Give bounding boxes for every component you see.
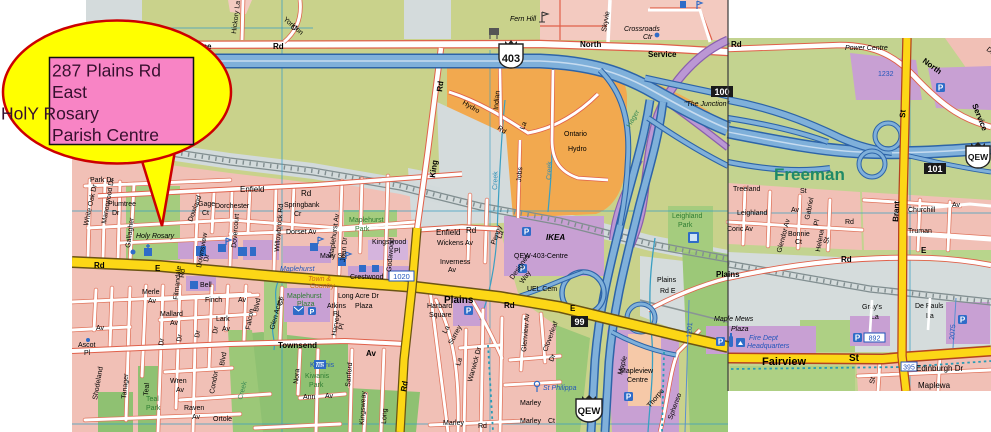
svg-text:Av: Av xyxy=(952,202,961,209)
svg-text:Fire Dept: Fire Dept xyxy=(749,335,779,342)
svg-text:Dr: Dr xyxy=(112,210,120,217)
svg-text:Ct: Ct xyxy=(202,210,209,217)
svg-text:Maplehurst: Maplehurst xyxy=(349,217,384,224)
svg-text:QEW: QEW xyxy=(578,406,601,417)
svg-text:East: East xyxy=(52,82,87,102)
svg-text:Service: Service xyxy=(648,50,677,59)
svg-text:Bonnie: Bonnie xyxy=(788,231,810,238)
svg-text:Park: Park xyxy=(355,226,370,233)
svg-text:Maplewa: Maplewa xyxy=(918,381,951,390)
svg-text:1201: 1201 xyxy=(686,322,694,338)
svg-text:"The Junction": "The Junction" xyxy=(684,101,730,108)
svg-text:Marley: Marley xyxy=(520,400,542,407)
svg-text:Square: Square xyxy=(429,312,452,319)
svg-text:Rd: Rd xyxy=(273,42,284,51)
svg-text:P: P xyxy=(938,84,944,93)
svg-text:St: St xyxy=(823,237,831,245)
svg-text:Kiwanis: Kiwanis xyxy=(305,373,330,380)
svg-text:Creek: Creek xyxy=(546,161,554,180)
svg-text:P: P xyxy=(466,307,472,316)
svg-text:1232: 1232 xyxy=(878,71,894,78)
svg-text:Parish Centre: Parish Centre xyxy=(52,125,159,145)
svg-text:Power Centre: Power Centre xyxy=(845,45,888,52)
svg-text:Atkins: Atkins xyxy=(327,303,347,310)
svg-text:Av: Av xyxy=(176,387,185,394)
svg-text:Gage: Gage xyxy=(198,201,215,208)
svg-text:Rd: Rd xyxy=(435,80,445,92)
svg-text:Ontario: Ontario xyxy=(564,131,587,138)
svg-text:Maplehurst: Maplehurst xyxy=(280,266,316,273)
svg-text:100: 100 xyxy=(714,87,729,97)
svg-text:Townsend: Townsend xyxy=(278,341,317,350)
svg-text:Bell: Bell xyxy=(200,282,212,289)
svg-text:2075: 2075 xyxy=(949,324,957,340)
svg-text:Springbank: Springbank xyxy=(284,202,320,209)
svg-text:Av: Av xyxy=(148,298,157,305)
svg-text:Av: Av xyxy=(222,326,231,333)
svg-text:North: North xyxy=(580,40,601,49)
svg-text:P: P xyxy=(310,309,315,316)
svg-text:Rd: Rd xyxy=(399,380,410,392)
svg-text:Cr: Cr xyxy=(294,211,302,218)
svg-text:Rd: Rd xyxy=(301,189,311,198)
svg-text:Mallard: Mallard xyxy=(160,311,183,318)
svg-text:Finch: Finch xyxy=(205,297,222,304)
svg-text:Ann: Ann xyxy=(303,394,316,401)
svg-text:Country: Country xyxy=(310,283,335,290)
svg-text:E: E xyxy=(570,304,576,313)
svg-text:Hydro: Hydro xyxy=(568,146,587,153)
svg-text:QEW: QEW xyxy=(968,152,989,162)
svg-text:Crossroads: Crossroads xyxy=(624,26,660,33)
svg-text:Wren: Wren xyxy=(170,378,187,385)
svg-text:Av: Av xyxy=(238,297,247,304)
svg-text:Long Acre Dr: Long Acre Dr xyxy=(338,293,380,300)
svg-text:Teal: Teal xyxy=(146,396,159,403)
svg-text:Plaza: Plaza xyxy=(731,326,749,333)
svg-text:Av: Av xyxy=(192,414,201,421)
svg-text:Rd E: Rd E xyxy=(660,288,676,295)
svg-text:Lark: Lark xyxy=(216,316,230,323)
svg-text:Merle: Merle xyxy=(142,289,160,296)
svg-text:Ascot: Ascot xyxy=(78,342,96,349)
svg-text:Park: Park xyxy=(309,382,324,389)
svg-text:287 Plains Rd: 287 Plains Rd xyxy=(52,61,161,81)
svg-text:Ct: Ct xyxy=(291,25,298,32)
svg-text:Harbard: Harbard xyxy=(427,303,452,310)
svg-text:P: P xyxy=(626,393,632,402)
svg-text:Rd: Rd xyxy=(179,269,187,279)
svg-text:Wickens Av: Wickens Av xyxy=(437,240,474,247)
svg-text:Dorset Av: Dorset Av xyxy=(286,229,317,236)
svg-text:101: 101 xyxy=(927,164,942,174)
svg-text:Av: Av xyxy=(325,393,334,400)
svg-text:Av: Av xyxy=(791,207,800,214)
svg-text:Creek: Creek xyxy=(492,171,500,190)
svg-text:Leighland: Leighland xyxy=(672,213,702,220)
svg-text:Plaza: Plaza xyxy=(297,301,315,308)
svg-text:Ct: Ct xyxy=(795,239,802,246)
svg-text:Long: Long xyxy=(381,408,389,424)
svg-text:Plaza: Plaza xyxy=(355,303,373,310)
svg-text:1020: 1020 xyxy=(393,272,410,281)
svg-text:Rd: Rd xyxy=(845,219,854,226)
svg-text:Centre: Centre xyxy=(627,377,648,384)
svg-text:Teal: Teal xyxy=(143,382,151,396)
svg-text:Enfield: Enfield xyxy=(240,185,264,194)
svg-text:Rd: Rd xyxy=(466,226,476,235)
svg-text:Rd: Rd xyxy=(94,261,105,270)
svg-text:Park: Park xyxy=(146,405,161,412)
svg-text:Pl: Pl xyxy=(84,350,91,357)
svg-text:E: E xyxy=(921,246,927,255)
svg-text:Inverness: Inverness xyxy=(440,259,471,266)
svg-text:St: St xyxy=(849,353,860,364)
svg-text:99: 99 xyxy=(574,317,584,327)
svg-text:P: P xyxy=(718,338,724,347)
svg-text:Holy Rosary: Holy Rosary xyxy=(136,233,175,240)
svg-text:Av: Av xyxy=(448,267,457,274)
svg-text:Av: Av xyxy=(366,349,376,358)
svg-text:403: 403 xyxy=(502,53,520,65)
svg-text:UEL Cem: UEL Cem xyxy=(527,286,557,293)
svg-text:892: 892 xyxy=(869,336,881,343)
svg-text:Town &: Town & xyxy=(308,276,331,283)
svg-text:Dorchester: Dorchester xyxy=(215,203,250,210)
svg-text:Fern Hill: Fern Hill xyxy=(510,16,537,23)
svg-text:Plumtree: Plumtree xyxy=(108,201,136,208)
svg-text:HolY Rosary: HolY Rosary xyxy=(1,104,99,124)
svg-text:Crestwood: Crestwood xyxy=(350,274,384,281)
svg-text:Marley: Marley xyxy=(443,420,465,427)
svg-text:P: P xyxy=(960,316,966,325)
svg-text:Headquarters: Headquarters xyxy=(747,343,790,350)
svg-text:Churchill: Churchill xyxy=(908,207,936,214)
svg-text:P: P xyxy=(855,334,861,343)
svg-text:P: P xyxy=(524,228,530,237)
svg-text:Ortole: Ortole xyxy=(213,416,232,423)
svg-text:St: St xyxy=(898,109,908,118)
svg-text:Treeland: Treeland xyxy=(733,186,760,193)
svg-text:E: E xyxy=(155,264,161,273)
svg-text:Leighland: Leighland xyxy=(737,210,767,217)
svg-text:395: 395 xyxy=(903,365,915,372)
svg-text:Rd: Rd xyxy=(478,423,487,430)
svg-text:St: St xyxy=(869,377,877,385)
svg-text:Ctr: Ctr xyxy=(643,34,653,41)
svg-text:Ct: Ct xyxy=(548,418,555,425)
svg-text:Maple Mews: Maple Mews xyxy=(714,316,754,323)
svg-text:Edinburgh Dr: Edinburgh Dr xyxy=(916,364,963,373)
svg-text:Raven: Raven xyxy=(184,405,204,412)
svg-text:Brant: Brant xyxy=(891,200,901,222)
svg-text:Fairview: Fairview xyxy=(762,356,806,368)
svg-text:IKEA: IKEA xyxy=(546,233,565,242)
svg-text:Enfield: Enfield xyxy=(436,228,460,237)
svg-text:Kiwanis: Kiwanis xyxy=(310,362,335,369)
svg-text:Park: Park xyxy=(678,222,693,229)
svg-text:Rd: Rd xyxy=(731,40,742,49)
svg-text:Marley: Marley xyxy=(520,418,542,425)
svg-text:Rd: Rd xyxy=(504,301,515,310)
svg-text:Coric Av: Coric Av xyxy=(727,226,753,233)
svg-text:Jobs: Jobs xyxy=(516,166,524,182)
svg-text:St: St xyxy=(800,188,807,195)
svg-text:Truman: Truman xyxy=(908,228,932,235)
svg-text:Plains: Plains xyxy=(657,277,677,284)
svg-text:St Philippa: St Philippa xyxy=(543,385,577,392)
svg-text:Av: Av xyxy=(96,325,105,332)
svg-text:Rd: Rd xyxy=(841,255,852,264)
svg-text:Freeman: Freeman xyxy=(774,165,845,184)
svg-text:Maplehurst: Maplehurst xyxy=(287,293,322,300)
svg-text:Nora: Nora xyxy=(293,368,301,384)
svg-text:Av: Av xyxy=(170,320,179,327)
